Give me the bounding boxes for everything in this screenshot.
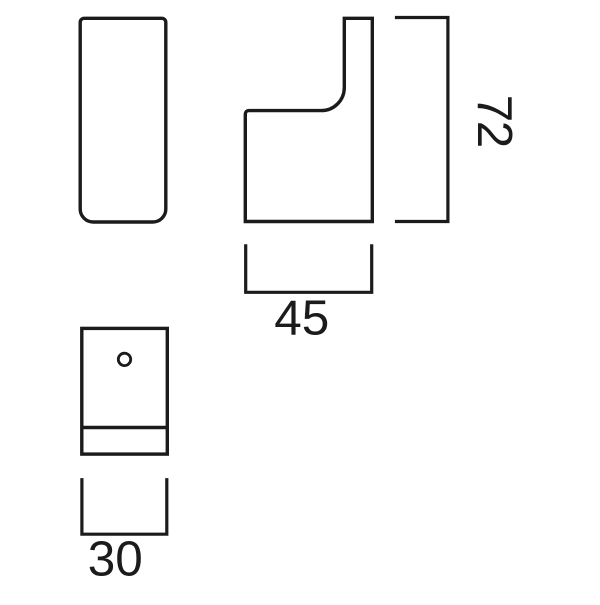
- svg-text:45: 45: [274, 290, 329, 345]
- svg-text:72: 72: [467, 95, 522, 147]
- svg-text:30: 30: [88, 532, 143, 587]
